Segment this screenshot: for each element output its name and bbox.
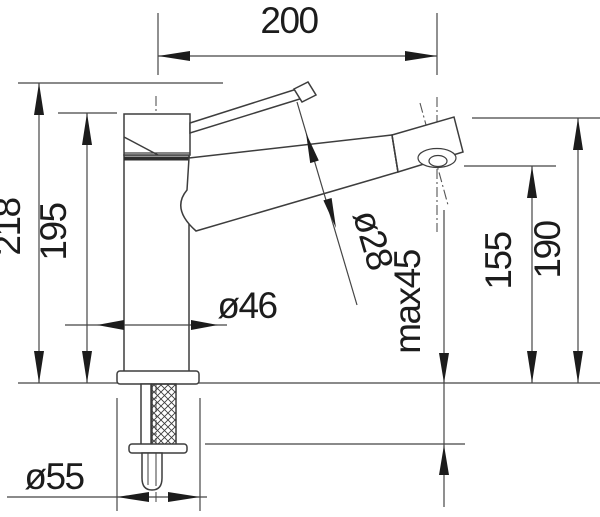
dim-label-195: 195 (33, 202, 74, 260)
mounting-washer (129, 444, 187, 453)
dim-max-deck-thickness: max45 (387, 210, 449, 507)
dim-spout-height: 190 (527, 118, 583, 383)
threaded-shank (152, 384, 176, 446)
dim-label-d55: ø55 (24, 456, 84, 497)
dim-spout-reach: 200 (158, 0, 437, 61)
arrowhead-top (573, 118, 583, 150)
lever-arm (190, 88, 303, 133)
faucet-head (124, 114, 190, 155)
arrowhead-left (158, 51, 190, 61)
dim-label-max45: max45 (387, 249, 428, 353)
supply-rod (141, 384, 151, 446)
arrowhead-right (168, 492, 200, 502)
dim-label-200: 200 (260, 0, 318, 41)
arrowhead-right (405, 51, 437, 61)
arrowhead-bottom (527, 351, 537, 383)
dim-label-190: 190 (527, 220, 568, 278)
arrowhead-left (117, 492, 149, 502)
aerator-outlet-inner (429, 156, 447, 167)
arrowhead-left (97, 320, 124, 330)
arrowhead-top (82, 113, 92, 145)
base-flange (117, 371, 199, 384)
dim-label-d46: ø46 (217, 285, 276, 326)
dim-spout-diameter: ø28 (297, 102, 401, 305)
arrowhead-to-deck (439, 353, 449, 383)
arrowhead-bottom (82, 351, 92, 383)
dim-base-diameter: ø55 (7, 456, 207, 502)
faucet-body (124, 155, 189, 372)
head-separator-band (124, 157, 190, 161)
technical-drawing-page: 200 218 195 ø46 ø28 max45 (0, 0, 600, 517)
dim-label-218: 218 (0, 198, 28, 255)
arrowhead-bottom (34, 351, 44, 383)
arrowhead-top (34, 83, 44, 115)
arrowhead-top (527, 166, 537, 198)
arrowhead-lower (323, 198, 336, 228)
arrowhead-bottom (573, 351, 583, 383)
dim-body-height: 195 (33, 113, 92, 383)
faucet-dimension-drawing: 200 218 195 ø46 ø28 max45 (0, 0, 600, 517)
dim-label-155: 155 (478, 231, 519, 289)
fixing-stud (142, 453, 162, 490)
arrowhead-right (191, 320, 218, 330)
arrowhead-to-bottom (439, 445, 449, 475)
